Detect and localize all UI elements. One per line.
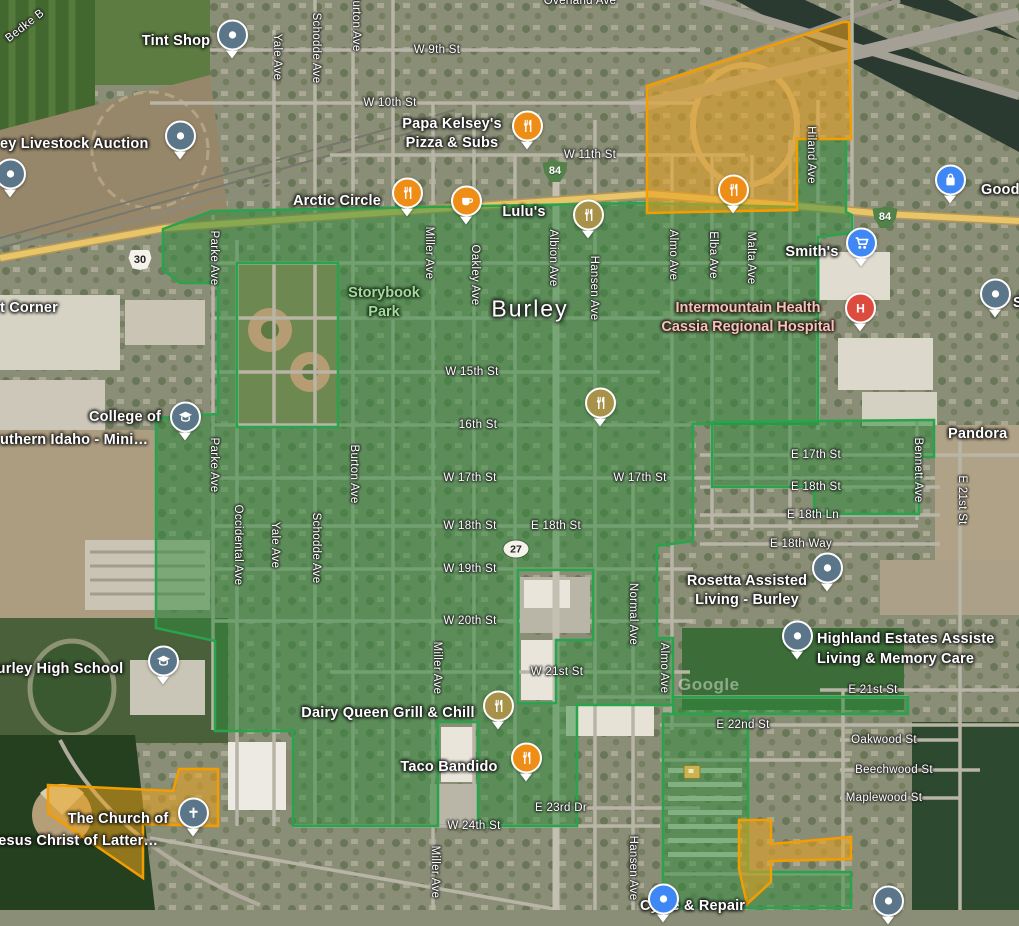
- hospital-pin[interactable]: H: [844, 292, 876, 333]
- high-school-pin[interactable]: [147, 645, 179, 686]
- graduation-cap-icon: [170, 401, 201, 432]
- smiths-pin[interactable]: [845, 227, 877, 268]
- church-pin[interactable]: [177, 797, 209, 838]
- highway-shield-27: 27: [504, 541, 529, 558]
- pin-tail: [821, 583, 833, 591]
- restaurant-icon: [483, 690, 514, 721]
- bottom-edge-pin[interactable]: [647, 883, 679, 924]
- fairgrounds-restaurant-pin[interactable]: [717, 174, 749, 215]
- papa-kelseys-pin[interactable]: [511, 110, 543, 151]
- pin-tail: [791, 651, 803, 659]
- taco-bandido-pin[interactable]: [510, 742, 542, 783]
- restaurant-icon: [585, 387, 616, 418]
- left-edge-pin[interactable]: [0, 158, 26, 199]
- pin-tail: [944, 195, 956, 203]
- place-dot-icon: [980, 278, 1011, 309]
- highway-shield-84: 84: [873, 206, 898, 228]
- pin-tail: [854, 323, 866, 331]
- restaurant-pin-olive-1[interactable]: [572, 199, 604, 240]
- highway-shield-30: 30: [129, 250, 152, 270]
- pin-tail: [4, 189, 16, 197]
- screenshot-root: { "map": { "city": "Burley", "watermark"…: [0, 0, 1019, 910]
- place-dot-icon: [165, 120, 196, 151]
- shopping-bag-icon: [935, 164, 966, 195]
- map-canvas[interactable]: W 9th StW 10th StW 11th StW 15th St16th …: [0, 0, 1019, 910]
- place-dot-icon: [812, 552, 843, 583]
- right-edge-pin[interactable]: [979, 278, 1011, 319]
- pin-tail: [989, 309, 1001, 317]
- pin-tail: [401, 208, 413, 216]
- college-pin[interactable]: [169, 401, 201, 442]
- pin-tail: [594, 418, 606, 426]
- bottom-right-pin[interactable]: [872, 885, 904, 926]
- place-dot-icon: [0, 158, 26, 189]
- pin-tail: [521, 141, 533, 149]
- hospital-h-icon: H: [845, 292, 876, 323]
- restaurant-icon: [511, 742, 542, 773]
- place-dot-icon: [782, 620, 813, 651]
- pin-tail: [882, 916, 894, 924]
- pin-tail: [582, 230, 594, 238]
- pin-tail: [492, 721, 504, 729]
- place-dot-icon: [217, 19, 248, 50]
- lulus-pin[interactable]: [450, 185, 482, 226]
- pin-tail: [855, 258, 867, 266]
- arctic-circle-pin[interactable]: [391, 177, 423, 218]
- pin-tail: [187, 828, 199, 836]
- shopping-cart-icon: [846, 227, 877, 258]
- pin-tail: [226, 50, 238, 58]
- restaurant-icon: [392, 177, 423, 208]
- highway-shield-84: 84: [543, 160, 568, 182]
- restaurant-icon: [718, 174, 749, 205]
- svg-text:H: H: [856, 301, 865, 315]
- worship-cross-icon: [178, 797, 209, 828]
- goode-store-pin[interactable]: [934, 164, 966, 205]
- restaurant-icon: [573, 199, 604, 230]
- map-pins-layer: H84843027: [0, 0, 1019, 910]
- livestock-auction-pin[interactable]: [164, 120, 196, 161]
- pin-tail: [520, 773, 532, 781]
- pin-tail: [157, 676, 169, 684]
- pin-tail: [657, 914, 669, 922]
- pin-tail: [174, 151, 186, 159]
- place-dot-icon: [873, 885, 904, 916]
- restaurant-pin-olive-2[interactable]: [584, 387, 616, 428]
- restaurant-icon: [512, 110, 543, 141]
- graduation-cap-icon: [148, 645, 179, 676]
- cafe-icon: [451, 185, 482, 216]
- pin-tail: [460, 216, 472, 224]
- rosetta-pin[interactable]: [811, 552, 843, 593]
- dairy-queen-pin[interactable]: [482, 690, 514, 731]
- pin-tail: [727, 205, 739, 213]
- highland-estates-pin[interactable]: [781, 620, 813, 661]
- tint-shop-pin[interactable]: [216, 19, 248, 60]
- flag-marker-icon[interactable]: [684, 765, 701, 779]
- pin-tail: [179, 432, 191, 440]
